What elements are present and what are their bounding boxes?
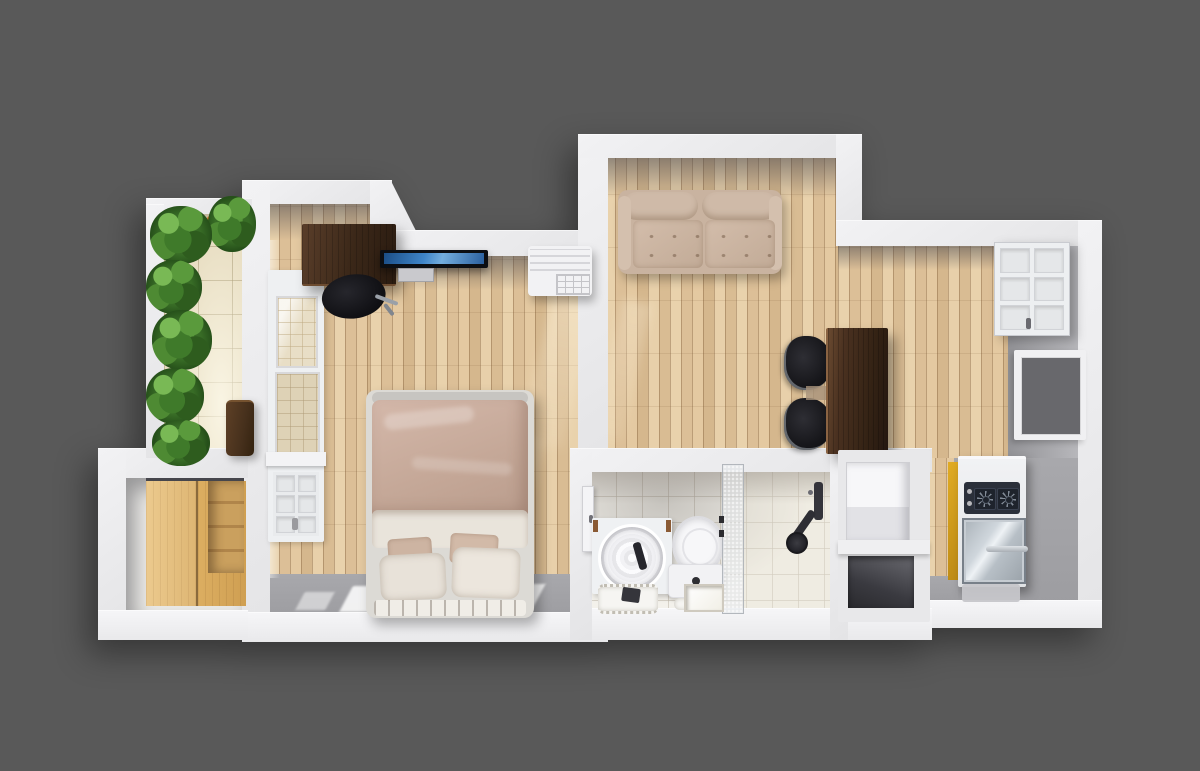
bedroom-window-unit [268,270,324,542]
bed-duvet [372,400,528,520]
panel [298,495,317,512]
panel [298,475,317,492]
plant-bush [146,260,202,314]
closet-panel [1000,248,1030,273]
kitchen-floor-mat [962,584,1020,602]
panel [276,475,295,492]
bed-base [374,600,526,616]
closet-panel [1000,277,1030,302]
partition-hinge [719,530,724,537]
closet-panel [1034,277,1064,302]
sofa-cushion [633,220,703,268]
kitchenette [948,456,1028,596]
vanity-wood-post [666,520,671,532]
window-latch [292,518,298,530]
wall [578,134,862,158]
bed-pillow [451,547,521,599]
closet-panel [1034,248,1064,273]
washing-machine [846,462,910,544]
stove-burner [997,488,1019,510]
dining-table [826,328,888,454]
window-glass-upper [276,296,318,368]
right-wall-window [1014,350,1086,440]
sofa-cushion [705,220,775,268]
plant-bush [150,206,212,264]
duvet-fold-highlight [383,405,474,430]
shower-knob [808,490,813,495]
cooktop-knob [967,489,972,494]
door-handle-bar [986,546,1028,552]
fridge-glass-door [962,518,1026,584]
floor-drain [684,584,724,612]
plant-bush [146,368,204,424]
ac-grille [556,274,590,295]
stove-burner [974,488,996,510]
apartment-scene [0,0,1200,771]
tv-screen [384,253,484,264]
sofa-armrest [618,196,631,270]
window-sill [266,452,326,466]
wardrobe-door-left [146,481,198,606]
dining-chair [784,398,832,450]
counter-lip [838,540,930,554]
closet-panel [1034,305,1064,330]
air-conditioner [528,246,592,296]
amenity-items [621,587,641,603]
ac-vent-slats [530,249,590,271]
open-cavity [848,556,914,608]
plant-bush [152,310,212,370]
cooktop-knob [967,501,972,506]
sofa-backrest [622,192,698,220]
duvet-fold-highlight [412,457,513,476]
sofa-backrest [702,192,778,220]
partition-hinge [719,516,724,523]
closet-handle [1026,318,1031,329]
office-chair [315,267,399,329]
wall-tv [380,250,488,268]
plant-bush [208,196,256,252]
office-chair-leg [383,303,395,316]
toilet-lid-seam [682,528,718,566]
dining-chair [784,336,832,390]
washer-enclosure [838,450,930,622]
panel [298,516,317,533]
panel [276,495,295,512]
step-shelves [208,481,244,573]
cooktop [964,482,1020,514]
floorplan-render [0,0,1200,771]
plant-bush [152,420,210,466]
wood-stool [226,400,254,456]
bed-pillow [379,552,447,601]
vanity-wood-post [593,520,598,532]
window-glass [1021,357,1081,435]
window-glass-lower [275,372,320,454]
round-basin [598,524,666,592]
loveseat-sofa [618,190,782,274]
maple-wardrobe [146,478,244,609]
double-bed [366,390,534,618]
glass-partition [722,464,744,614]
wall [98,610,248,640]
wall-divider [578,134,608,468]
closet-door [994,242,1070,336]
tv-bracket [398,268,434,282]
shower-head [786,532,808,554]
